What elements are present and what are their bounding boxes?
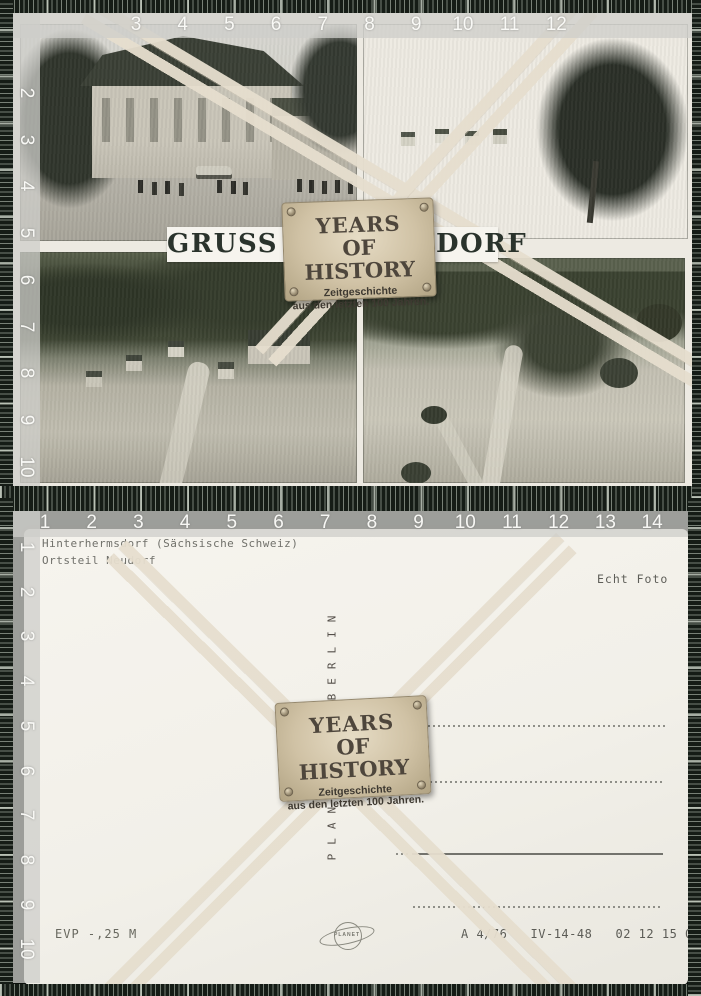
ruler-band-left: 2345678910 — [13, 13, 40, 486]
ruler-number: 10 — [15, 938, 37, 960]
watermark-label: YEARS OF HISTORY Zeitgeschichte aus den … — [281, 197, 436, 301]
village-houses — [168, 347, 184, 357]
location-line-1: Hinterhermsdorf (Sächsische Schweiz) — [42, 537, 298, 550]
ruler-number: 4 — [172, 14, 194, 36]
ruler-number: 3 — [15, 129, 37, 151]
ruler-number: 9 — [15, 409, 37, 431]
ruler-number: 4 — [15, 670, 37, 692]
ruler-number: 8 — [361, 512, 383, 534]
label-title: OF HISTORY — [284, 233, 436, 284]
ruler-number: 10 — [454, 512, 476, 534]
ruler-number: 9 — [405, 14, 427, 36]
publisher-vertical-text-berlin: BERLIN — [326, 594, 339, 714]
car-silhouette — [196, 166, 232, 179]
ruler-number: 2 — [81, 512, 103, 534]
ruler-number: 6 — [15, 269, 37, 291]
ruler-number: 5 — [15, 715, 37, 737]
ruler-number: 5 — [221, 512, 243, 534]
ruler-number: 12 — [548, 512, 570, 534]
ruler-number: 11 — [499, 14, 521, 36]
ruler-number: 7 — [312, 14, 334, 36]
address-line-solid — [412, 853, 663, 855]
ruler-number: 3 — [127, 512, 149, 534]
price-text: EVP -,25 M — [55, 927, 137, 941]
watermark-label: YEARS OF HISTORY Zeitgeschichte aus den … — [275, 695, 432, 802]
ruler-number: 12 — [545, 14, 567, 36]
ruler-number: 5 — [15, 222, 37, 244]
measuring-tape-top — [0, 498, 701, 511]
postcard-back-scan: Hinterhermsdorf (Sächsische Schweiz) Ort… — [0, 498, 701, 996]
ruler-number: 2 — [15, 82, 37, 104]
ruler-number: 6 — [15, 760, 37, 782]
ruler-band-top: 3456789101112 — [13, 13, 692, 38]
bushes — [421, 406, 447, 424]
ruler-number: 8 — [15, 849, 37, 871]
label-title: OF HISTORY — [277, 731, 429, 785]
ruler-number: 7 — [314, 512, 336, 534]
ruler-number: 5 — [218, 14, 240, 36]
measuring-tape-top — [0, 0, 701, 13]
ruler-band-left: 12345678910 — [13, 511, 40, 983]
measuring-tape-bottom — [0, 486, 701, 498]
measuring-tape-right — [688, 498, 701, 996]
planet-publisher-logo: PLANET — [317, 918, 377, 954]
measuring-tape-left — [0, 0, 13, 498]
ruler-number: 10 — [452, 14, 474, 36]
ruler-number: 6 — [265, 14, 287, 36]
address-line-dotted — [420, 781, 665, 783]
ruler-band-top: 123456789101112131415 — [13, 511, 701, 537]
ruler-number: 8 — [359, 14, 381, 36]
tree-trunk — [587, 161, 599, 223]
ruler-number: 7 — [15, 804, 37, 826]
rivet-icon — [286, 207, 295, 216]
ruler-number: 9 — [408, 512, 430, 534]
ruler-number: 4 — [174, 512, 196, 534]
photo-type-note: Echt Foto — [597, 572, 668, 586]
measuring-tape-right — [692, 0, 701, 498]
ruler-number: 1 — [15, 536, 37, 558]
ruler-number: 9 — [15, 894, 37, 916]
measuring-tape-left — [0, 498, 13, 996]
field-path — [433, 411, 497, 483]
ruler-number: 14 — [641, 512, 663, 534]
ruler-number: 2 — [15, 581, 37, 603]
people-silhouettes — [138, 180, 143, 193]
ruler-number: 6 — [268, 512, 290, 534]
ruler-number: 8 — [15, 362, 37, 384]
ruler-number: 7 — [15, 316, 37, 338]
ruler-number: 4 — [15, 175, 37, 197]
address-line-dotted — [428, 725, 665, 727]
ruler-number: 3 — [15, 625, 37, 647]
postcard-front-scan: GRUSS AUS NEUDORF YEARS OF HISTORY Zeitg… — [0, 0, 701, 498]
address-line-dotted — [413, 906, 662, 908]
measuring-tape-bottom — [0, 984, 701, 996]
field-path — [476, 344, 524, 483]
rivet-icon — [419, 203, 428, 212]
ruler-number: 11 — [501, 512, 523, 534]
village-road — [150, 360, 211, 483]
planet-logo-text: PLANET — [317, 932, 377, 938]
ruler-number: 13 — [594, 512, 616, 534]
ruler-number: 10 — [15, 456, 37, 478]
ruler-number: 3 — [125, 14, 147, 36]
